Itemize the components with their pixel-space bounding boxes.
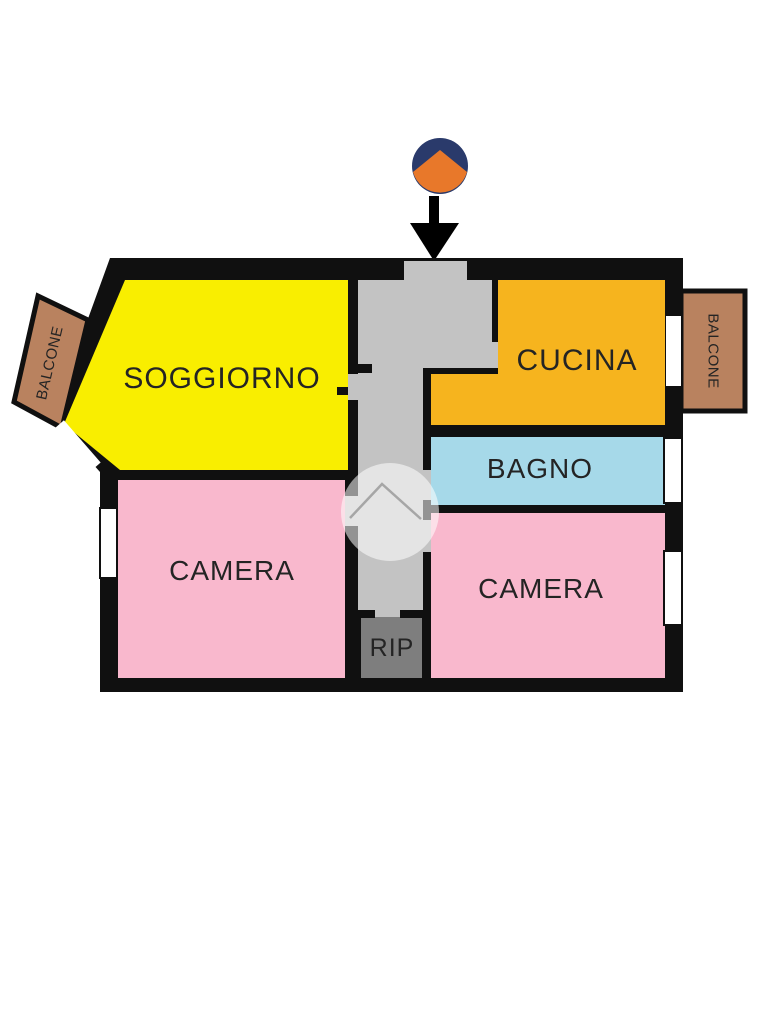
entrance-opening	[404, 261, 467, 281]
window-camera-right	[664, 551, 682, 625]
label-soggiorno: SOGGIORNO	[123, 362, 320, 395]
entrance-marker	[410, 138, 468, 261]
house-watermark	[341, 463, 439, 561]
window-bagno	[664, 438, 682, 503]
wall-stub	[357, 364, 372, 373]
rip-door-stub	[400, 610, 428, 618]
entrance-arrow-head	[410, 223, 459, 261]
label-cucina: CUCINA	[516, 344, 637, 377]
label-camera-right: CAMERA	[478, 573, 604, 604]
label-ripostiglio: RIP	[370, 634, 415, 662]
rip-door-stub	[352, 610, 375, 618]
wall-stub	[337, 387, 348, 395]
entrance-arrow-shaft	[429, 196, 439, 225]
floor-plan-page: SOGGIORNO CUCINA BAGNO CAMERA CAMERA RIP…	[0, 0, 768, 1024]
door-balcone-right	[666, 316, 681, 386]
label-bagno: BAGNO	[487, 453, 593, 484]
label-camera-left: CAMERA	[169, 555, 295, 586]
floor-plan-svg: SOGGIORNO CUCINA BAGNO CAMERA CAMERA RIP…	[0, 0, 768, 1024]
door-cucina	[492, 342, 498, 368]
door-soggiorno	[348, 374, 358, 400]
label-balcone-right: BALCONE	[705, 313, 722, 388]
window-camera-left	[100, 508, 117, 578]
